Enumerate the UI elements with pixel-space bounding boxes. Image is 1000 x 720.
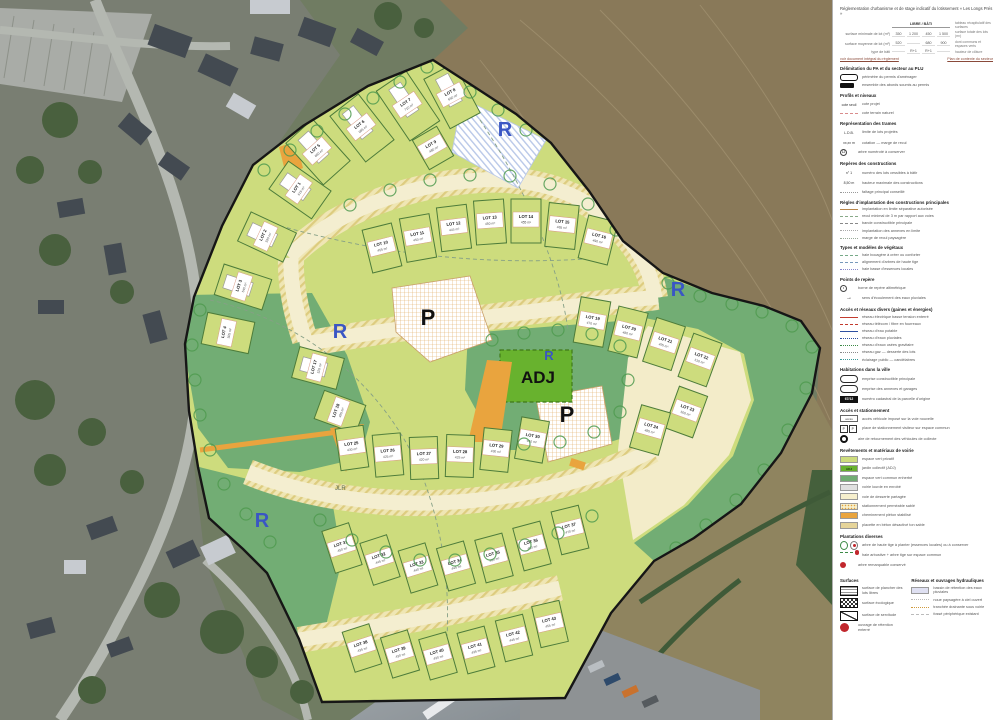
line-icon (840, 223, 858, 224)
legend-item: bande constructible principale (840, 221, 993, 226)
swatch-icon (840, 484, 858, 491)
legend-item-label: cotation — marge de recul (862, 141, 907, 146)
legend-item-label: implantation des annexes en limite (862, 229, 920, 234)
reserve-marker: R (544, 348, 554, 363)
legend-item-label: emprise constructible principale (862, 377, 915, 382)
legend-item: réseau gaz — desserte des lots (840, 350, 993, 355)
legend-item-label: réseau d'eaux usées gravitaire (862, 343, 914, 348)
lot-number: LOT 13 (482, 214, 497, 220)
legend-item-label: réseau d'eaux pluviales (862, 336, 902, 341)
legend-item: 12arbre numéroté à conserver (840, 149, 993, 156)
legend-item-label: numéro cadastral de la parcelle d'origin… (862, 397, 930, 402)
legend-item: accèsaccès véhicule imposé sur la voie n… (840, 415, 993, 422)
parking-marker: P (421, 305, 436, 330)
circled-icon: 12 (840, 149, 847, 156)
legend-item-label: réseau d'eau potable (862, 329, 897, 334)
lot-area: 420 m² (419, 457, 430, 461)
swatch-icon: ADJ (840, 465, 858, 472)
legend-section-heading: Surfaces (840, 578, 905, 583)
legend-item: L.D.B.limite de lots projetés (840, 129, 993, 137)
legend-section-heading: Types et modèles de végétaux (840, 245, 993, 250)
dashline-icon (840, 324, 858, 325)
table-row-label: surface minimale de lot (m²) (840, 32, 890, 36)
legend-item-label: bande constructible principale (862, 221, 912, 226)
legend-section-heading: Points de repère (840, 277, 993, 282)
legend-item: alignement d'arbres de haute tige (840, 260, 993, 265)
two-circles-icon (840, 541, 858, 549)
legend-item-label: faîtage principal conseillé (862, 190, 905, 195)
legend-item-label: arbre numéroté à conserver (858, 150, 905, 155)
legend-item-label: arbre de haute tige à planter (essences … (862, 543, 968, 548)
legend-item: espace vert commun enherbé (840, 475, 993, 482)
lot-parcel: LOT 13450 m² (474, 199, 507, 245)
lot-parcel: LOT 29430 m² (480, 428, 512, 473)
lot-label-card: LOT 12445 m² (440, 217, 468, 235)
lot-parcel: LOT 26425 m² (372, 433, 404, 477)
legend-item-label: haie bocagère à créer ou conforter (862, 253, 920, 258)
legend-item: marge de recul paysagère (840, 236, 993, 241)
line-icon (840, 269, 858, 270)
lot-label-card: LOT 28425 m² (447, 447, 474, 463)
legend-section-heading: Accès et réseaux divers (gaines et énerg… (840, 307, 993, 312)
lot-label-card: LOT 13450 m² (476, 212, 503, 229)
legend-item: →sens d'écoulement des eaux pluviales (840, 294, 993, 302)
legend-item: ADJjardin collectif (ADJ) (840, 465, 993, 472)
legend-link[interactable]: Plan de contexte du secteur (947, 57, 993, 61)
legend-item: haie basse d'essences locales (840, 267, 993, 272)
line-icon (911, 599, 929, 600)
legend-item: voie de desserte partagée (840, 493, 993, 500)
table-value (907, 43, 920, 44)
legend-item-label: éclairage public — candélabres (862, 358, 915, 363)
reserve-marker: R (333, 321, 348, 343)
table-value: R+1 (922, 49, 935, 54)
legend-item: réseau d'eaux pluviales (840, 336, 993, 341)
legend-item: faîtage principal conseillé (840, 190, 993, 195)
white-rounded-icon (840, 385, 858, 393)
legend-item-label: aire de retournement des véhicules de co… (858, 437, 937, 442)
legend-item: PPplace de stationnement visiteur sur es… (840, 425, 993, 433)
legend-item: arbre de haute tige à planter (essences … (840, 541, 993, 549)
swatch-icon (840, 456, 858, 463)
dashline-icon (840, 352, 858, 353)
black-box-icon: 67/12 (840, 396, 858, 403)
lot-parcel: LOT 12445 m² (436, 204, 471, 251)
legend-section-heading: Accès et stationnement (840, 408, 993, 413)
legend-item: stationnement perméable sablé (840, 503, 993, 510)
legend-item-label: numéro des lots cessibles à bâtir (862, 171, 917, 176)
wheel-icon (840, 435, 848, 443)
lot-parcel: LOT 28425 m² (445, 435, 474, 478)
swatch-icon (840, 493, 858, 500)
text-code-icon: 8,50 m (840, 179, 858, 187)
legend-item-label: accès véhicule imposé sur la voie nouvel… (862, 417, 934, 422)
line-icon (840, 113, 858, 114)
reserve-marker: R (671, 279, 686, 301)
red-dot-icon (840, 562, 846, 568)
legend-item-label: noue paysagère à ciel ouvert (933, 598, 982, 603)
letter-boxes-icon: PP (840, 425, 858, 433)
table-value: 520 (892, 41, 905, 46)
white-rounded-icon (840, 375, 858, 383)
legend-section-heading: Plantations diverses (840, 534, 993, 539)
legend-links: voir document intégral du règlementPlan … (840, 57, 993, 61)
legend-item: implantation en limite séparative autori… (840, 207, 993, 212)
rounded-outline-icon (840, 74, 858, 81)
line-icon (911, 614, 929, 615)
legend-item: cote terrain naturel (840, 111, 993, 116)
legend-item-label: marge de recul paysagère (862, 236, 906, 241)
line-icon (840, 255, 858, 256)
swatch-icon (911, 587, 929, 594)
legend-item-label: jardin collectif (ADJ) (862, 466, 896, 471)
swatch-icon (840, 475, 858, 482)
legend-item-label: haie arbustive + arbre tige sur espace c… (862, 553, 941, 558)
table-value: 680 (922, 41, 935, 46)
legend-item-label: périmètre du permis d'aménager (862, 75, 917, 80)
legend-item-label: placette en béton désactivé ton sable (862, 523, 925, 528)
adj-marker: ADJ (521, 368, 555, 387)
table-value: 1 500 (937, 32, 950, 37)
legend-item: surface écologique (840, 598, 905, 608)
legend-section-heading: Représentation des trames (840, 121, 993, 126)
box-checker-icon (840, 598, 858, 608)
circled-icon: • (840, 285, 847, 292)
line-icon (840, 209, 858, 210)
table-right-label: hauteur de clôture (952, 50, 993, 54)
legend-item-label: arbre remarquable conservé (858, 563, 906, 568)
legend-item: arbre remarquable conservé (840, 562, 993, 568)
table-value: 450 (922, 32, 935, 37)
legend-item: périmètre du permis d'aménager (840, 74, 993, 81)
legend-sections: Délimitation du PA et du secteur au PLUp… (840, 66, 993, 568)
legend-item: surface de servitude (840, 611, 905, 621)
table-right-label: surface totale des lots (m²) (952, 30, 993, 38)
legend-item: xx,xx mcotation — marge de recul (840, 139, 993, 147)
legend-section-heading: Profils et niveaux (840, 93, 993, 98)
lot-parcel: LOT 14455 m² (511, 199, 541, 243)
legend-section-heading: Réseaux et ouvrages hydrauliques (911, 578, 993, 583)
legend-item: placette en béton désactivé ton sable (840, 522, 993, 529)
table-value: 350 (892, 32, 905, 37)
legend-item: réseau télécom / fibre en fourreaux (840, 322, 993, 327)
legend-item-label: ouvrage de rétention enterré (858, 623, 905, 632)
legend-item: bassin de rétention des eaux pluviales (911, 586, 993, 595)
legend-item-label: cheminement piéton stabilisé (862, 513, 911, 518)
legend-item-label: réseau télécom / fibre en fourreaux (862, 322, 921, 327)
legend-item-label: stationnement perméable sablé (862, 504, 915, 509)
legend-item: aire de retournement des véhicules de co… (840, 435, 993, 443)
dashline-icon (840, 338, 858, 339)
text-code-icon: cote seuil (840, 101, 858, 109)
plan-watermark: JLR (335, 486, 346, 492)
legend-item-label: haie basse d'essences locales (862, 267, 913, 272)
swatch-icon (840, 512, 858, 519)
text-code-icon: n° 1 (840, 169, 858, 177)
lot-number: LOT 28 (453, 449, 468, 455)
legend-item: n° 1numéro des lots cessibles à bâtir (840, 169, 993, 177)
dashline-icon (840, 359, 858, 360)
legend-item: réseau d'eaux usées gravitaire (840, 343, 993, 348)
greendash-reddot-icon (840, 552, 858, 560)
legend-item: 67/12numéro cadastral de la parcelle d'o… (840, 396, 993, 403)
legend-item: réseau électrique basse tension enterré (840, 315, 993, 320)
legend-section-heading: Règles d'implantation des constructions … (840, 200, 993, 205)
legend-item: fossé périphérique existant (911, 612, 993, 617)
lot-number: LOT 14 (519, 214, 534, 219)
legend-item: surface de plancher des lots libres (840, 586, 905, 596)
legend-panel: Réglementation d'urbanisme et de stage i… (832, 0, 1000, 720)
lot-label-card: LOT 15465 m² (548, 216, 575, 234)
legend-item-label: espace vert privatif (862, 457, 894, 462)
legend-item-label: tranchée drainante sous voirie (933, 605, 984, 610)
legend-item: implantation des annexes en limite (840, 229, 993, 234)
text-code-icon: xx,xx m (840, 139, 858, 147)
lot-label-card: LOT 29430 m² (482, 440, 509, 458)
line-icon (911, 607, 929, 608)
legend-item-label: bassin de rétention des eaux pluviales (933, 586, 993, 595)
legend-item: tranchée drainante sous voirie (911, 605, 993, 610)
legend-footer: Surfacessurface de plancher des lots lib… (840, 573, 993, 635)
legend-item: noue paysagère à ciel ouvert (911, 598, 993, 603)
legend-item: espace vert privatif (840, 456, 993, 463)
legend-section-heading: Délimitation du PA et du secteur au PLU (840, 66, 993, 71)
lot-parcel: LOT 27420 m² (409, 437, 438, 480)
legend-item-label: fossé périphérique existant (933, 612, 978, 617)
lot-area: 425 m² (455, 455, 466, 459)
site-plan-sheet: LOT 1615 m²LOT 2590 m²LOT 3540 m²LOT 450… (0, 0, 1000, 720)
lot-parcel: LOT 25430 m² (335, 425, 369, 470)
legend-item-label: alignement d'arbres de haute tige (862, 260, 918, 265)
table-value: R+1 (907, 49, 920, 54)
lot-area: 455 m² (521, 221, 532, 225)
legend-item: éclairage public — candélabres (840, 358, 993, 363)
legend-item: ensemble des abords soumis au permis (840, 83, 993, 88)
box-diag-icon (840, 611, 858, 621)
table-row-label: surface moyenne de lot (m²) (840, 42, 890, 46)
legend-item-label: sens d'écoulement des eaux pluviales (862, 296, 926, 301)
box-lines-icon (840, 586, 858, 596)
legend-section-heading: Habitations dans la ville (840, 367, 993, 372)
legend-item: haie bocagère à créer ou conforter (840, 253, 993, 258)
white-box-icon: accès (840, 415, 858, 422)
legend-item-label: réseau gaz — desserte des lots (862, 350, 915, 355)
table-value: 1 200 (907, 32, 920, 37)
reserve-marker: R (498, 119, 513, 141)
legend-item-label: surface de servitude (862, 613, 896, 618)
legend-item-label: limite de lots projetés (862, 130, 898, 135)
legend-item: cote seuilcote projet (840, 101, 993, 109)
legend-item-label: borne de repère altimétrique (858, 286, 906, 291)
dashline-icon (840, 317, 858, 318)
reserve-marker: R (255, 510, 270, 532)
legend-item: •borne de repère altimétrique (840, 285, 993, 292)
legend-section-heading: Repères des constructions (840, 161, 993, 166)
legend-item-label: surface écologique (862, 601, 894, 606)
legend-table: LIBRE / BÂTItableau récapitulatif des su… (840, 21, 993, 55)
legend-item: 8,50 mhauteur maximale des constructions (840, 179, 993, 187)
legend-item: réseau d'eau potable (840, 329, 993, 334)
lot-number: LOT 27 (417, 451, 432, 457)
parking-marker: P (560, 402, 575, 427)
legend-item-label: ensemble des abords soumis au permis (862, 83, 929, 88)
legend-item-label: surface de plancher des lots libres (862, 586, 905, 595)
legend-title: Réglementation d'urbanisme et de stage i… (840, 6, 993, 17)
table-group-header: LIBRE / BÂTI (892, 22, 950, 28)
lot-label-card: LOT 14455 m² (513, 212, 539, 227)
swatch-icon (840, 522, 858, 529)
lot-area: 450 m² (485, 221, 496, 226)
legend-item-label: cote terrain naturel (862, 111, 894, 116)
line-icon (840, 230, 858, 231)
line-icon (840, 262, 858, 263)
legend-item-label: cote projet (862, 102, 880, 107)
lot-parcel: LOT 15465 m² (545, 203, 579, 250)
legend-item-label: réseau électrique basse tension enterré (862, 315, 929, 320)
legend-item: voirie lourde en enrobé (840, 484, 993, 491)
legend-item: haie arbustive + arbre tige sur espace c… (840, 552, 993, 560)
legend-item-label: place de stationnement visiteur sur espa… (862, 426, 950, 431)
legend-item: emprise constructible principale (840, 375, 993, 383)
filled-tag-icon (840, 83, 854, 88)
lot-label-card: LOT 27420 m² (411, 449, 438, 465)
table-right-label: dont communs et espaces verts (952, 40, 993, 48)
line-icon (840, 216, 858, 217)
legend-footer-right: Réseaux et ouvrages hydrauliquesbassin d… (911, 573, 993, 635)
legend-item-label: voirie lourde en enrobé (862, 485, 901, 490)
line-icon (840, 238, 858, 239)
legend-footer-left: Surfacessurface de plancher des lots lib… (840, 573, 905, 635)
legend-item-label: recul minimal de 3 m par rapport aux voi… (862, 214, 934, 219)
table-right-header: tableau récapitulatif des surfaces (952, 21, 993, 29)
lot-label-card: LOT 26425 m² (374, 445, 401, 462)
table-value (937, 51, 950, 52)
text-code-icon: L.D.B. (840, 129, 858, 137)
legend-link[interactable]: voir document intégral du règlement (840, 57, 899, 61)
arrow-icon: → (840, 294, 858, 302)
legend-item: emprise des annexes et garages (840, 385, 993, 393)
legend-item-label: espace vert commun enherbé (862, 476, 912, 481)
swatch-dots-icon (840, 503, 858, 510)
legend-item-label: hauteur maximale des constructions (862, 181, 923, 186)
legend-item: ouvrage de rétention enterré (840, 623, 905, 632)
dashline-icon (840, 331, 858, 332)
legend-item-label: voie de desserte partagée (862, 495, 906, 500)
legend-item: cheminement piéton stabilisé (840, 512, 993, 519)
table-row-label: type de bâti (840, 50, 890, 54)
dashline-icon (840, 345, 858, 346)
legend-item-label: emprise des annexes et garages (862, 387, 917, 392)
table-value (892, 51, 905, 52)
table-value: 900 (937, 41, 950, 46)
line-icon (840, 192, 858, 193)
red-dot-big-icon (840, 623, 849, 632)
legend-section-heading: Revêtements et matériaux de voirie (840, 448, 993, 453)
legend-item-label: implantation en limite séparative autori… (862, 207, 933, 212)
legend-item: recul minimal de 3 m par rapport aux voi… (840, 214, 993, 219)
